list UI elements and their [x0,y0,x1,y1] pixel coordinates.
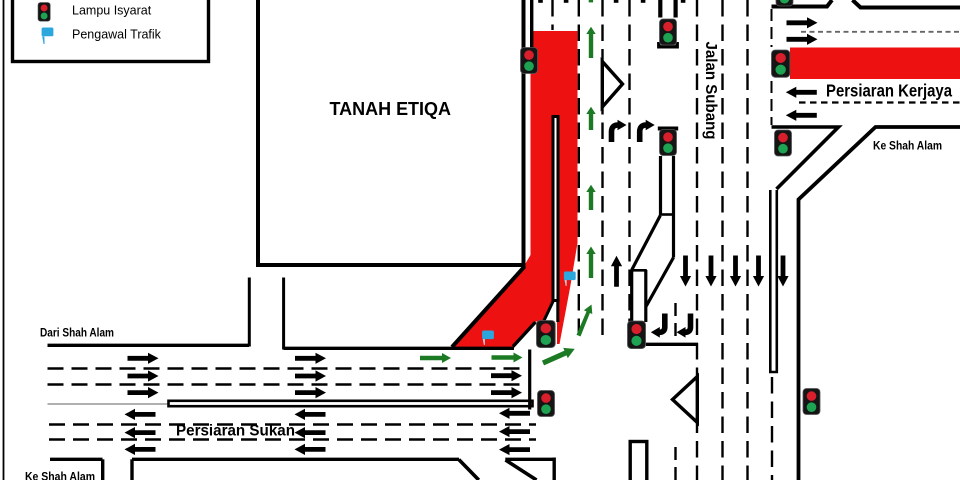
svg-text:Dari Shah Alam: Dari Shah Alam [40,328,114,340]
svg-text:Ke Shah Alam: Ke Shah Alam [25,472,95,480]
svg-text:Pengawal Trafik: Pengawal Trafik [72,28,162,42]
svg-text:TANAH ETIQA: TANAH ETIQA [330,98,452,119]
svg-text:Persiaran Sukan: Persiaran Sukan [176,423,295,440]
svg-text:Lampu Isyarat: Lampu Isyarat [72,4,152,18]
svg-text:Ke Shah Alam: Ke Shah Alam [873,141,942,153]
svg-text:Persiaran Kerjaya: Persiaran Kerjaya [826,81,952,101]
svg-text:Jalan Subang: Jalan Subang [702,42,719,140]
